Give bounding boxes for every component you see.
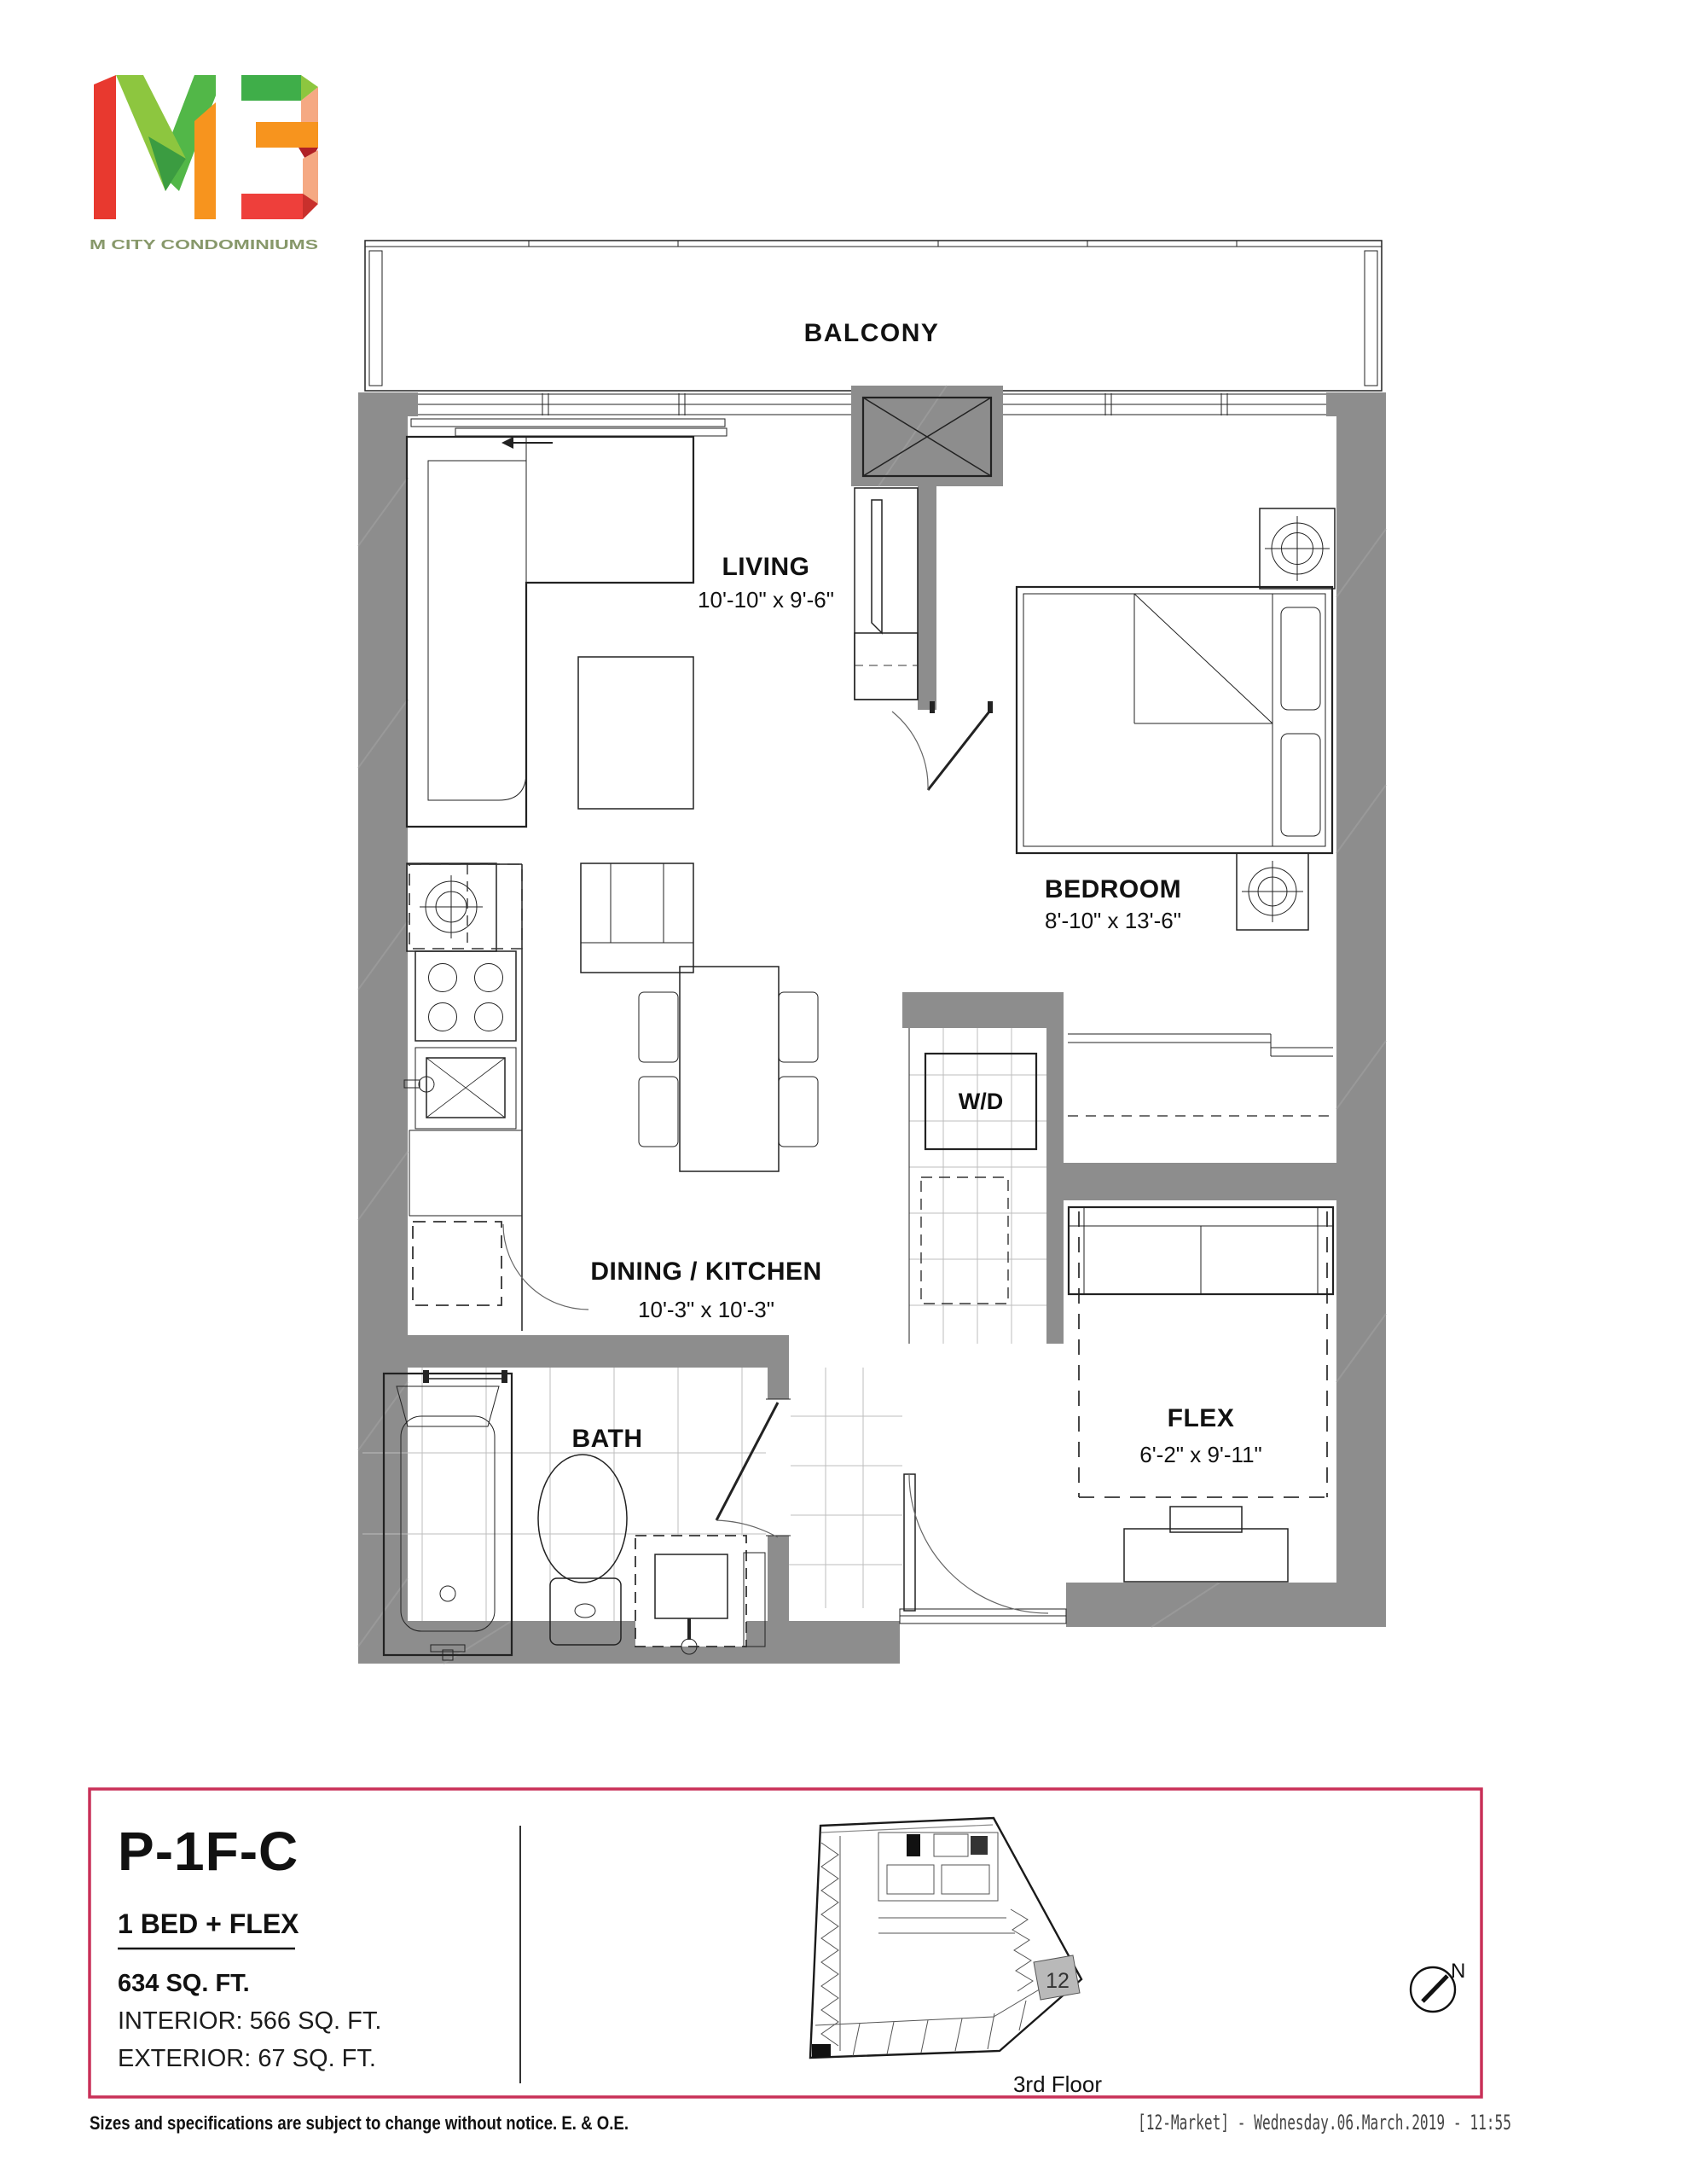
floorplan-sheet: M CITY CONDOMINIUMS BALCONY xyxy=(0,0,1687,2184)
laundry-closet: W/D xyxy=(909,1028,1046,1344)
footer-plot-stamp: [12-Market] - Wednesday.06.March.2019 - … xyxy=(1138,2111,1511,2135)
footer: Sizes and specifications are subject to … xyxy=(90,2111,1511,2135)
entry-door xyxy=(900,1474,1066,1623)
living-dims: 10'-10" x 9'-6" xyxy=(698,587,834,613)
linen-closet xyxy=(921,1177,1008,1304)
dining-kitchen-dims: 10'-3" x 10'-3" xyxy=(638,1297,774,1322)
bedroom-dims: 8'-10" x 13'-6" xyxy=(1045,908,1181,933)
nightstand-lamp xyxy=(1260,508,1335,589)
bedroom-door xyxy=(892,701,993,790)
sofa xyxy=(407,437,693,827)
keyplan-floor-label: 3rd Floor xyxy=(1013,2071,1102,2097)
toilet xyxy=(538,1455,627,1645)
kitchen-sink xyxy=(404,1048,516,1129)
flex-sofa xyxy=(1069,1207,1333,1294)
footer-disclaimer: Sizes and specifications are subject to … xyxy=(90,2112,629,2134)
room-bath: BATH xyxy=(362,1368,902,1660)
base-cabinet xyxy=(409,1130,522,1216)
flex-label: FLEX xyxy=(1168,1404,1235,1432)
laundry-label: W/D xyxy=(959,1089,1003,1114)
living-label: LIVING xyxy=(722,553,809,581)
coffee-table xyxy=(578,657,693,809)
towel-bar xyxy=(423,1370,507,1383)
slider-direction-arrow xyxy=(501,437,513,449)
bedroom-closet xyxy=(1068,1034,1333,1116)
north-arrow-icon: N xyxy=(1411,1960,1465,2012)
unit-type: 1 BED + FLEX xyxy=(118,1908,299,1939)
bedroom-label: BEDROOM xyxy=(1045,875,1181,903)
cooktop xyxy=(415,951,516,1041)
room-flex: FLEX 6'-2" x 9'-11" xyxy=(1069,1207,1333,1582)
m3-logo-icon xyxy=(94,75,318,219)
north-label: N xyxy=(1451,1960,1465,1983)
unit-interior-area: INTERIOR: 566 SQ. FT. xyxy=(118,2007,381,2035)
dining-kitchen-label: DINING / KITCHEN xyxy=(590,1258,821,1286)
desk xyxy=(1124,1507,1288,1582)
unit-code: P-1F-C xyxy=(118,1821,299,1882)
bath-door xyxy=(716,1399,791,1537)
vanity-sink xyxy=(635,1536,765,1654)
brand-tagline: M CITY CONDOMINIUMS xyxy=(90,238,318,253)
armchair xyxy=(581,863,693,973)
balcony-label: BALCONY xyxy=(804,319,940,347)
nightstand-lamp xyxy=(1237,853,1308,930)
floor-plan: BALCONY xyxy=(358,241,1386,1664)
dining-table-set xyxy=(639,967,818,1171)
side-table-lamp xyxy=(407,863,496,951)
room-living: LIVING 10'-10" x 9'-6" xyxy=(407,437,918,973)
balcony: BALCONY xyxy=(365,241,1382,391)
info-panel: P-1F-C 1 BED + FLEX 634 SQ. FT. INTERIOR… xyxy=(90,1789,1481,2097)
tv-unit xyxy=(855,488,918,700)
keyplan-unit-number: 12 xyxy=(1046,1969,1070,1993)
unit-exterior-area: EXTERIOR: 67 SQ. FT. xyxy=(118,2045,376,2072)
unit-total-area: 634 SQ. FT. xyxy=(118,1970,250,1997)
brand-logo: M CITY CONDOMINIUMS xyxy=(90,75,318,253)
bed xyxy=(1017,587,1332,853)
room-dining-kitchen: DINING / KITCHEN 10'-3" x 10'-3" xyxy=(404,864,822,1331)
fridge xyxy=(413,1222,588,1310)
bath-label: BATH xyxy=(571,1425,642,1453)
keyplan: 12 3rd Floor xyxy=(810,1818,1102,2097)
flex-dims: 6'-2" x 9'-11" xyxy=(1139,1442,1262,1467)
